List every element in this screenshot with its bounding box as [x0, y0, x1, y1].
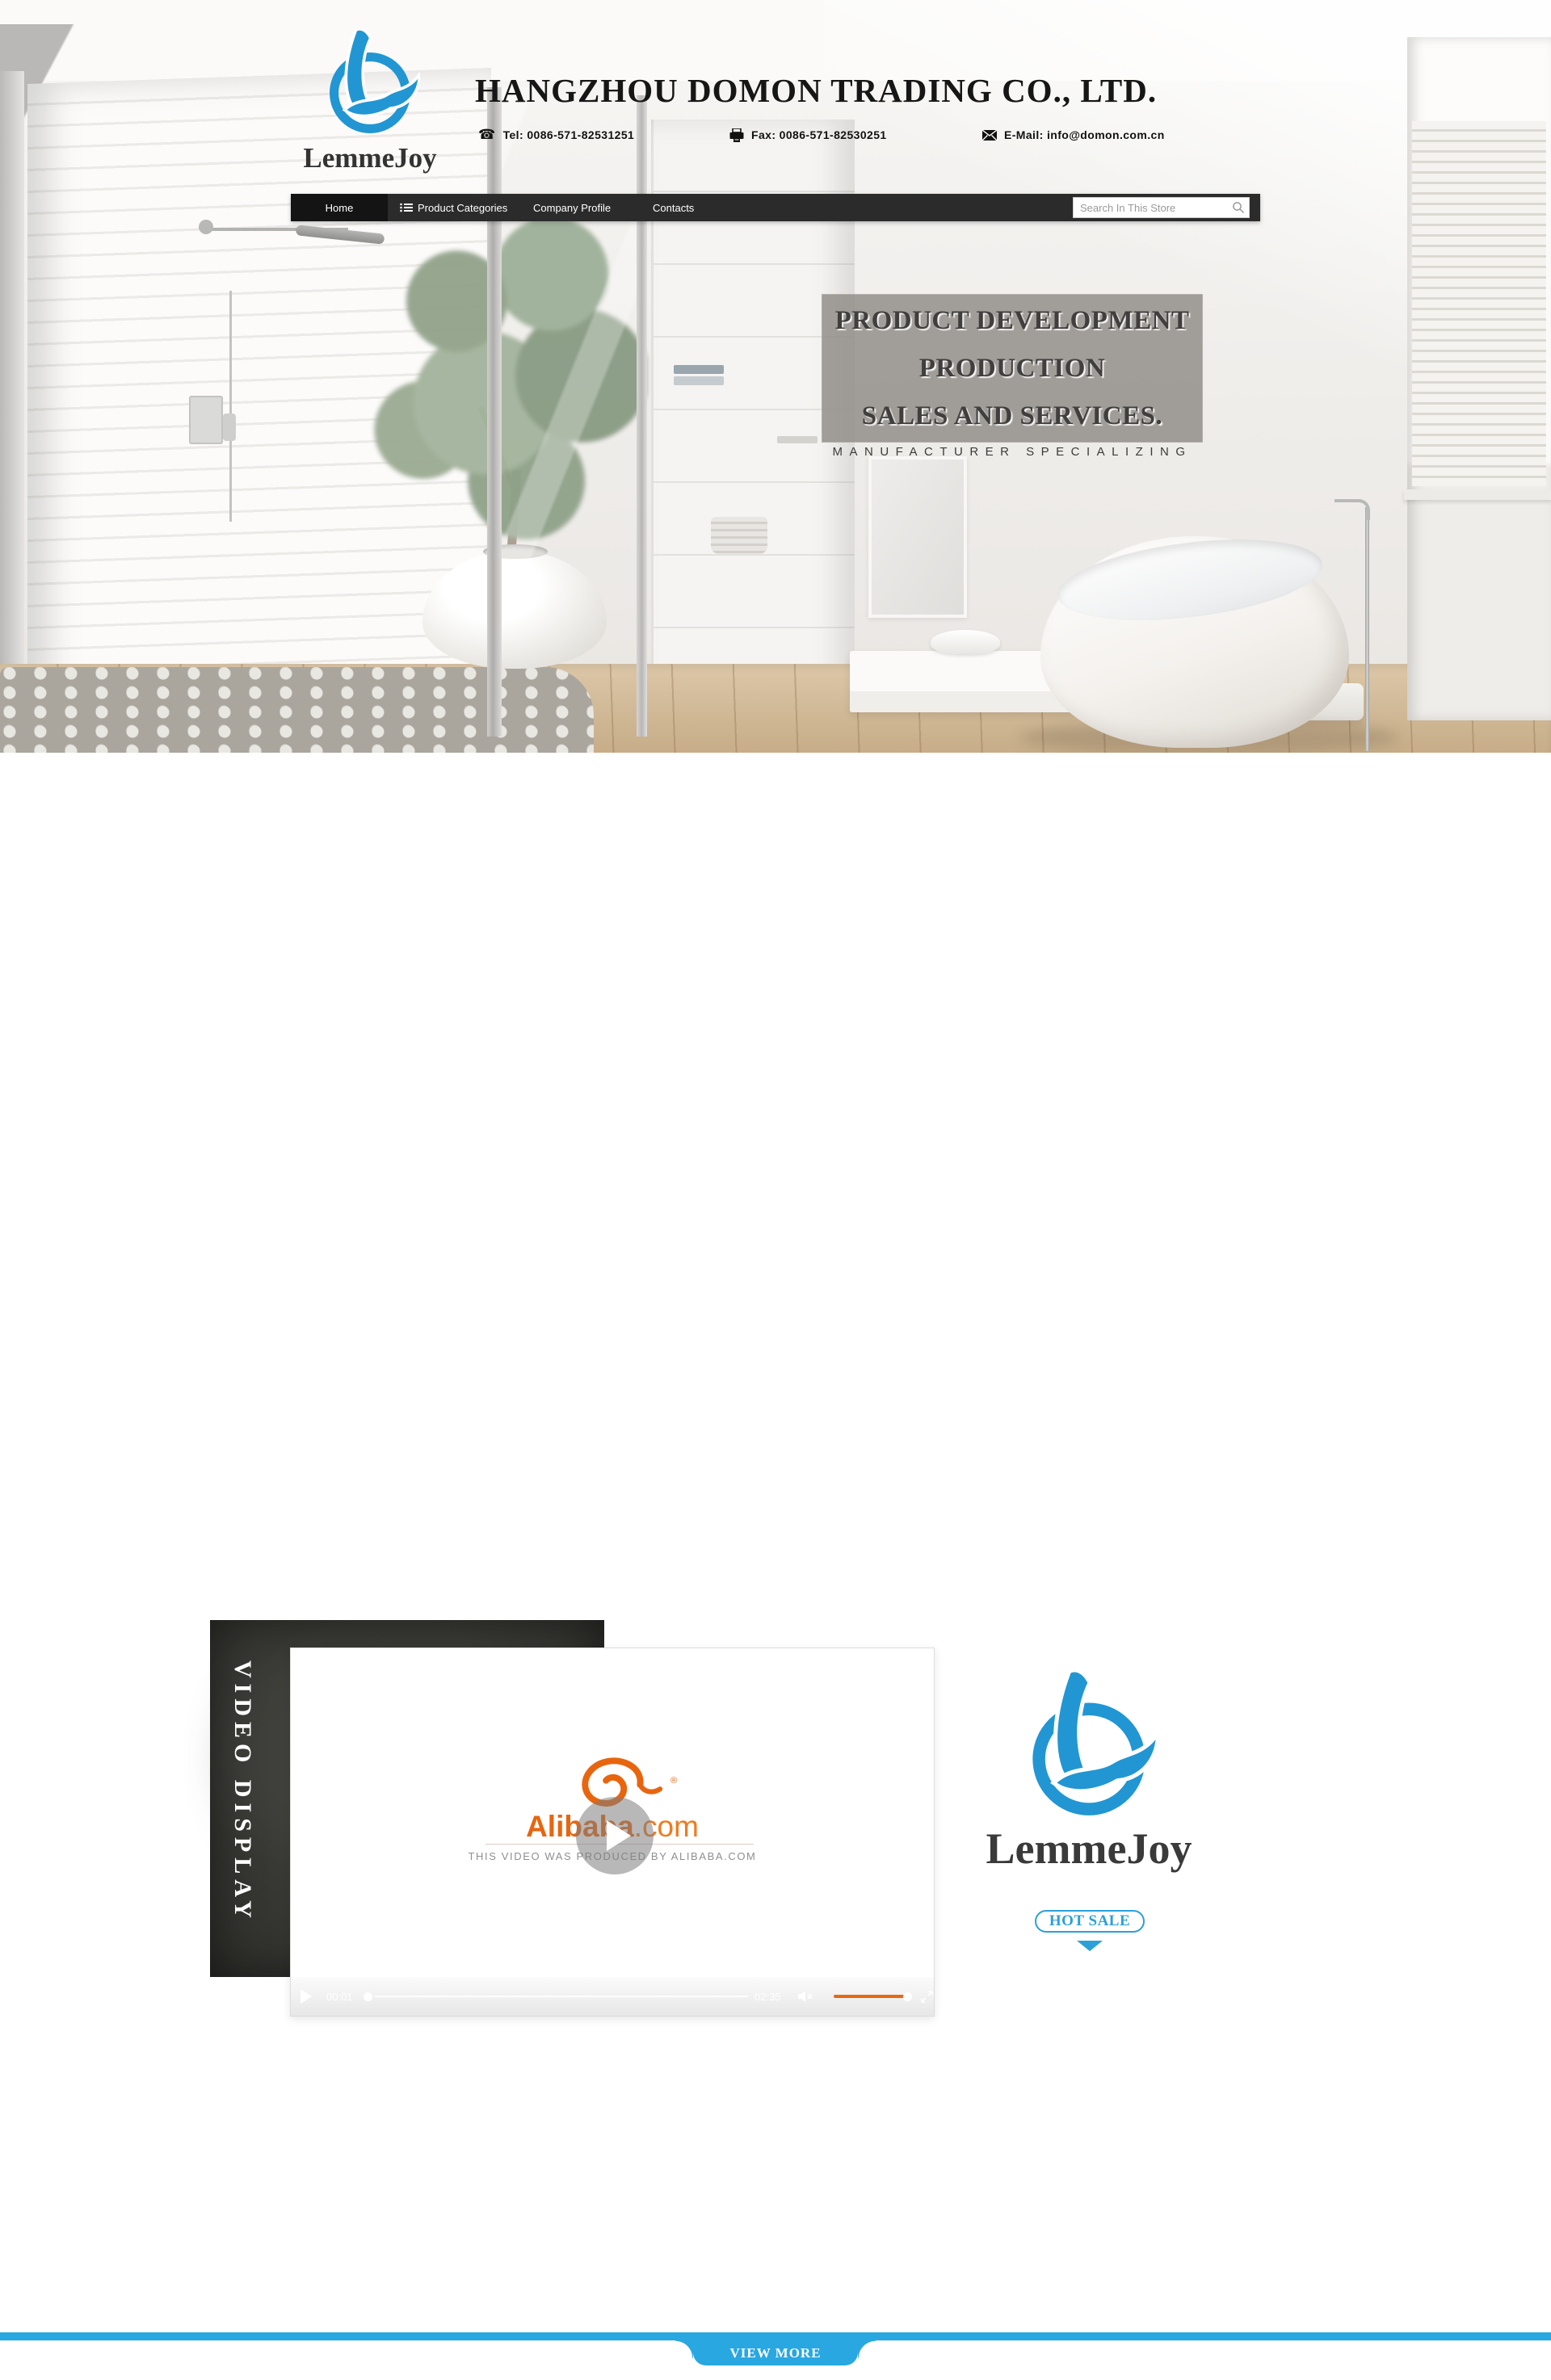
page: LemmeJoy HANGZHOU DOMON TRADING CO., LTD…	[0, 0, 1551, 2380]
brand-logo-icon[interactable]	[320, 29, 420, 144]
tab-fillet-graphic	[858, 2340, 876, 2358]
glass-edge-graphic	[0, 71, 24, 722]
email-label: E-Mail: info@domon.com.cn	[1004, 128, 1165, 141]
glass-frame-graphic	[637, 95, 647, 737]
tab-fillet-graphic	[675, 2340, 693, 2358]
play-button[interactable]	[576, 1797, 654, 1874]
control-play-button[interactable]	[301, 1977, 312, 2016]
nav-label: Contacts	[653, 202, 694, 214]
seek-handle[interactable]	[364, 1977, 372, 2016]
registered-mark: ®	[670, 1776, 677, 1786]
nav-label: Product Categories	[418, 202, 507, 214]
hero-slogan-box: PRODUCT DEVELOPMENT PRODUCTION SALES AND…	[822, 294, 1203, 443]
video-controls: 00:01 02:35	[291, 1977, 934, 2016]
nav-item-contacts[interactable]: Contacts	[653, 194, 694, 221]
towel-graphic	[777, 436, 818, 443]
mirror-graphic	[868, 456, 967, 618]
phone-icon: ☎	[478, 127, 496, 143]
view-more-button[interactable]: VIEW MORE	[693, 2340, 858, 2365]
fullscreen-button[interactable]	[920, 1977, 934, 2016]
company-title: HANGZHOU DOMON TRADING CO., LTD.	[475, 71, 1275, 110]
basket-graphic	[711, 517, 767, 554]
shower-mixer-graphic	[189, 396, 223, 444]
fax-label: Fax: 0086-571-82530251	[751, 128, 887, 141]
fax-contact: Fax: 0086-571-82530251	[729, 123, 887, 147]
brand-name: LemmeJoy	[283, 142, 457, 174]
main-nav: Home Product Categories Company Profile …	[291, 194, 1260, 221]
play-icon	[301, 1989, 312, 2004]
hero-banner: LemmeJoy HANGZHOU DOMON TRADING CO., LTD…	[0, 0, 1551, 753]
nav-label: Home	[326, 202, 354, 214]
contact-row: ☎ Tel: 0086-571-82531251 Fax: 0086-571-8…	[475, 123, 1267, 147]
volume-slider[interactable]	[834, 1977, 906, 2016]
glass-sheen-graphic	[502, 87, 637, 733]
search-icon	[1232, 201, 1245, 214]
nav-item-product-categories[interactable]: Product Categories	[400, 194, 507, 221]
search-button[interactable]	[1228, 198, 1249, 217]
shower-rail-graphic	[229, 291, 232, 522]
towel-graphic	[674, 365, 724, 374]
hero-slogan-line: PRODUCT DEVELOPMENT	[822, 306, 1203, 336]
towel-graphic	[674, 376, 724, 385]
hot-sale-button[interactable]: HOT SALE	[1035, 1910, 1145, 1933]
shower-handle-graphic	[223, 413, 236, 441]
faucet-pole-graphic	[1365, 507, 1369, 751]
store-search	[1073, 197, 1250, 218]
nav-label: Company Profile	[533, 202, 611, 214]
email-contact: E-Mail: info@domon.com.cn	[982, 123, 1165, 147]
fullscreen-icon	[920, 1990, 934, 2004]
mute-button[interactable]	[798, 1977, 814, 2016]
window-blinds-graphic	[1412, 121, 1546, 486]
chevron-down-icon[interactable]	[1077, 1941, 1103, 1951]
fax-icon	[729, 128, 744, 142]
tel-label: Tel: 0086-571-82531251	[503, 128, 635, 141]
hero-tagline: MANUFACTURER SPECIALIZING	[822, 445, 1203, 459]
vessel-sink-graphic	[931, 630, 1000, 654]
window-sill-graphic	[1404, 489, 1551, 500]
duration-time: 02:35	[754, 1977, 781, 2016]
list-icon	[400, 203, 413, 212]
brand-name-large: LemmeJoy	[968, 1824, 1210, 1874]
hero-slogan-line: PRODUCTION	[822, 354, 1203, 384]
speaker-muted-icon	[798, 1991, 814, 2002]
shower-mount-graphic	[199, 220, 213, 234]
current-time: 00:01	[326, 1977, 353, 2016]
tel-contact: ☎ Tel: 0086-571-82531251	[478, 123, 634, 147]
play-icon	[607, 1820, 631, 1851]
faucet-spout-graphic	[1335, 499, 1370, 520]
glass-frame-graphic	[487, 87, 502, 737]
nav-item-home[interactable]: Home	[291, 194, 388, 221]
video-section-title: VIDEO DISPLAY	[229, 1660, 256, 1943]
seek-bar[interactable]	[375, 1977, 748, 2016]
video-player[interactable]: ® Alibaba.com THIS VIDEO WAS PRODUCED BY…	[290, 1648, 935, 2017]
mail-icon	[982, 130, 997, 141]
volume-handle[interactable]	[903, 1977, 912, 2016]
brand-logo-icon	[1019, 1670, 1158, 1830]
nav-item-company-profile[interactable]: Company Profile	[533, 194, 611, 221]
hero-slogan-line: SALES AND SERVICES.	[822, 401, 1203, 431]
search-input[interactable]	[1074, 202, 1228, 214]
footer-accent-bar	[0, 2332, 1551, 2340]
